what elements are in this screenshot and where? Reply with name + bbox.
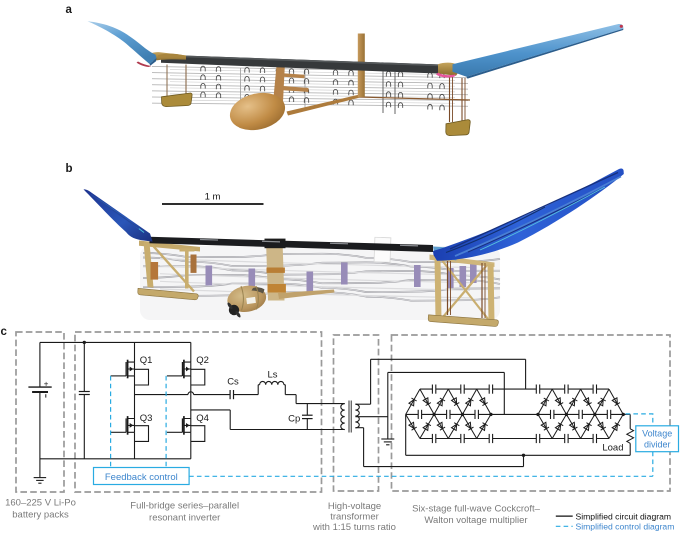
svg-text:Cp: Cp xyxy=(288,413,300,424)
svg-text:Q1: Q1 xyxy=(140,355,153,366)
svg-text:divider: divider xyxy=(644,440,671,450)
svg-text:Voltage: Voltage xyxy=(642,429,672,439)
svg-text:Simplified control diagram: Simplified control diagram xyxy=(576,522,675,531)
svg-text:battery packs: battery packs xyxy=(12,510,69,521)
svg-text:High-voltage: High-voltage xyxy=(328,501,381,512)
svg-text:Feedback control: Feedback control xyxy=(105,472,178,483)
svg-text:Simplified circuit diagram: Simplified circuit diagram xyxy=(576,512,672,522)
svg-text:1 m: 1 m xyxy=(205,192,221,203)
svg-text:a: a xyxy=(66,4,73,16)
svg-text:with 1:15 turns ratio: with 1:15 turns ratio xyxy=(312,522,396,531)
svg-text:Q4: Q4 xyxy=(196,413,209,424)
svg-text:Full-bridge series–parallel: Full-bridge series–parallel xyxy=(130,501,239,512)
svg-text:transformer: transformer xyxy=(330,512,379,523)
svg-text:Six-stage full-wave Cockcroft–: Six-stage full-wave Cockcroft– xyxy=(412,504,540,515)
svg-text:c: c xyxy=(1,326,8,338)
svg-text:Walton voltage multiplier: Walton voltage multiplier xyxy=(424,515,527,526)
svg-text:Ls: Ls xyxy=(267,370,277,381)
svg-text:Load: Load xyxy=(602,442,623,453)
svg-text:b: b xyxy=(66,163,73,175)
svg-text:160–225 V Li-Po: 160–225 V Li-Po xyxy=(5,498,76,509)
svg-text:+: + xyxy=(44,379,49,388)
svg-text:resonant inverter: resonant inverter xyxy=(149,513,220,524)
svg-text:Q3: Q3 xyxy=(140,413,153,424)
svg-text:Q2: Q2 xyxy=(196,355,209,366)
svg-text:Cs: Cs xyxy=(227,377,239,388)
